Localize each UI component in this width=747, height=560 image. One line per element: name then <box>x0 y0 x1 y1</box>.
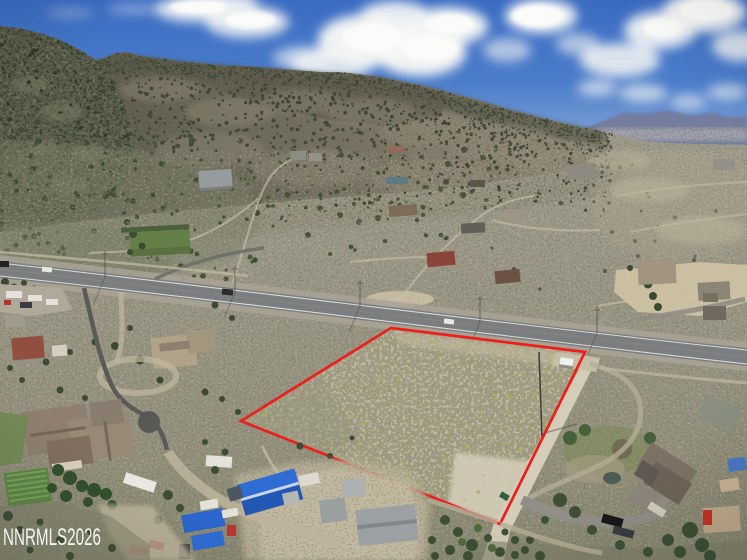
svg-text:NNRMLS2026: NNRMLS2026 <box>3 524 101 551</box>
